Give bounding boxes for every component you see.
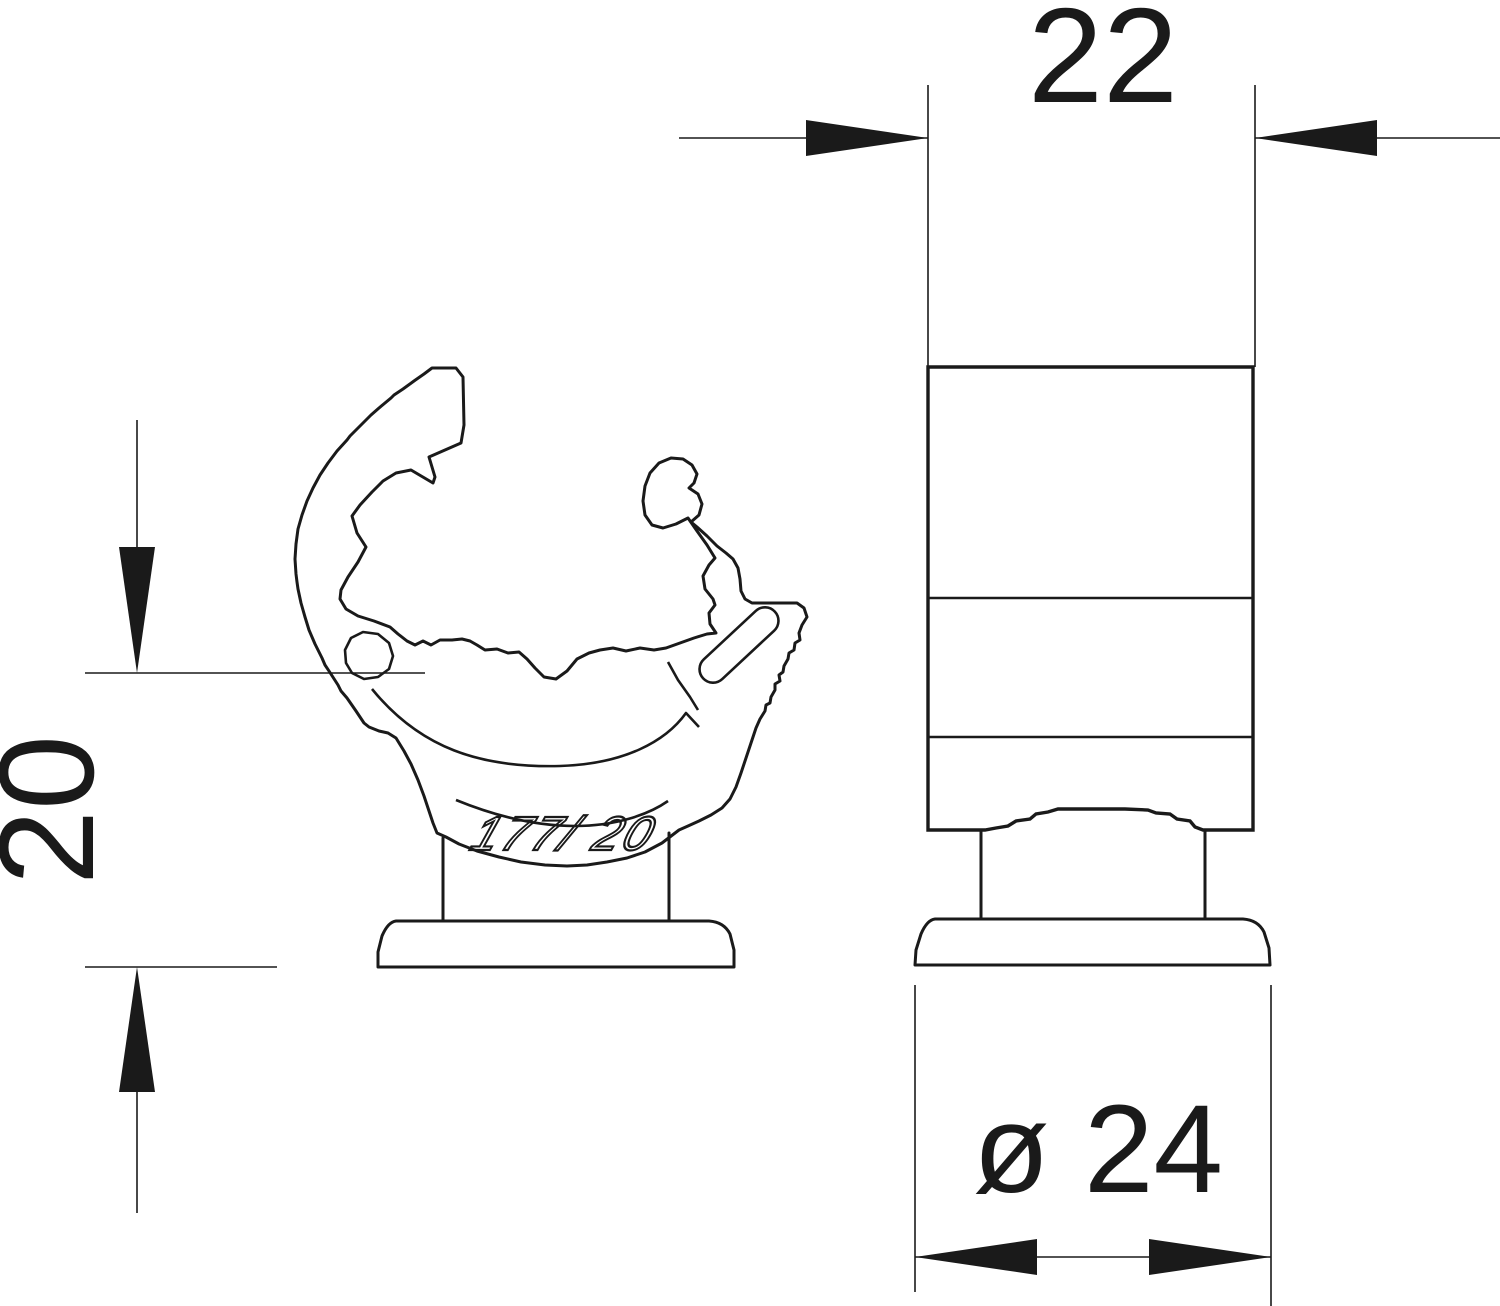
diameter-arrow-right [1149,1239,1271,1275]
diameter-arrow-left [915,1239,1037,1275]
technical-drawing-page: 177/ 20 22 [0,0,1500,1306]
width-arrow-right [1255,120,1377,156]
width-arrow-left [806,120,928,156]
front-view-outline [295,368,807,866]
width-dim-label: 22 [1028,0,1178,131]
front-view-hole [345,632,393,679]
side-view [915,367,1270,965]
diameter-dim-label: ø 24 [973,1080,1223,1219]
height-arrow-up [119,967,155,1092]
dimension-width: 22 [679,0,1500,367]
front-view-slot [694,602,784,689]
drawing-canvas: 177/ 20 22 [0,0,1500,1306]
front-view-finger-gap-spur [668,662,698,710]
part-marking-text: 177/ 20 [464,806,665,860]
dimension-diameter: ø 24 [915,985,1271,1306]
front-view: 177/ 20 [295,368,807,967]
side-view-base-plate [915,919,1270,965]
front-view-base-plate [378,921,734,967]
height-arrow-down [119,547,155,673]
height-dim-label: 20 [0,735,122,885]
front-view-finger-gap [372,689,699,766]
